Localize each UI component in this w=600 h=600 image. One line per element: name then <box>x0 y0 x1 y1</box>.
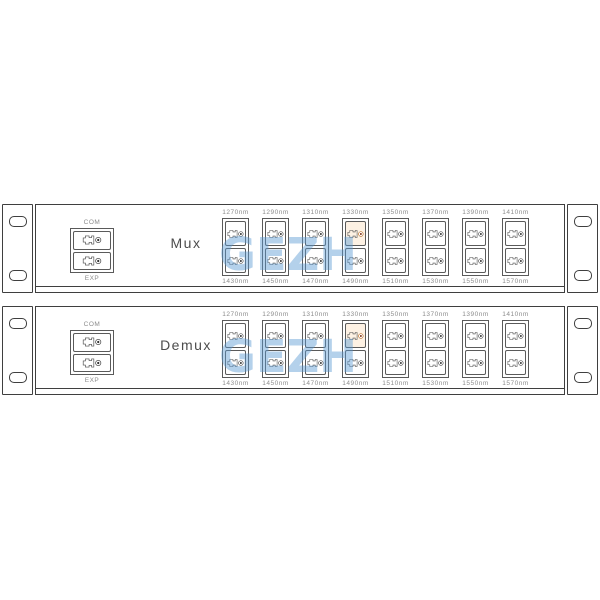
wavelength-port-column: 1290nm 1450nm <box>262 208 289 286</box>
lc-connector-icon <box>226 330 245 342</box>
wavelength-label-bottom: 1470nm <box>302 277 329 286</box>
lc-connector-icon <box>226 357 245 369</box>
wavelength-label-top: 1350nm <box>382 208 409 217</box>
lc-connector-icon <box>226 255 245 267</box>
lc-port-bottom <box>465 248 486 273</box>
lc-port-bottom <box>305 248 326 273</box>
wavelength-label-top: 1290nm <box>262 208 289 217</box>
lc-port-bottom <box>345 248 366 273</box>
lc-connector-icon <box>306 330 325 342</box>
lc-connector-icon <box>466 255 485 267</box>
lc-connector-icon <box>466 330 485 342</box>
duplex-portbox <box>382 320 409 378</box>
wavelength-port-column: 1270nm 1430nm <box>222 310 249 388</box>
wavelength-label-bottom: 1550nm <box>462 379 489 388</box>
lc-connector-icon <box>266 357 285 369</box>
lc-connector-icon <box>346 228 365 240</box>
lc-port-bottom <box>425 248 446 273</box>
lc-port-top <box>505 221 526 246</box>
wavelength-label-bottom: 1550nm <box>462 277 489 286</box>
wavelength-label-top: 1310nm <box>302 310 329 319</box>
wavelength-label-bottom: 1490nm <box>342 277 369 286</box>
lc-connector-icon <box>266 255 285 267</box>
lc-connector-icon <box>386 357 405 369</box>
lc-port-bottom <box>345 350 366 375</box>
ear-slot-icon <box>9 216 27 227</box>
duplex-portbox <box>462 320 489 378</box>
lc-port-bottom <box>505 350 526 375</box>
panel-face: COM EXP Demux 1270nm <box>36 307 564 388</box>
ear-slot-icon <box>574 216 592 227</box>
wavelength-label-top: 1270nm <box>222 208 249 217</box>
mounting-ear-right <box>567 204 598 293</box>
lc-connector-icon <box>266 330 285 342</box>
lc-port-top <box>345 221 366 246</box>
wavelength-port-column: 1390nm 1550nm <box>462 208 489 286</box>
panel-body: COM EXP Mux 1270nm <box>35 204 565 293</box>
rack-stack: COM EXP Mux 1270nm <box>2 204 598 395</box>
lc-port-top <box>265 323 286 348</box>
wavelength-label-bottom: 1430nm <box>222 379 249 388</box>
com-label: COM <box>84 218 101 227</box>
lc-port-bottom <box>425 350 446 375</box>
lc-port-top <box>305 323 326 348</box>
lc-connector-icon <box>81 357 103 369</box>
wavelength-ports-row: 1270nm 1430nm 1290nm 1450nm 1310nm <box>222 208 529 286</box>
wavelength-label-bottom: 1570nm <box>502 277 529 286</box>
wavelength-label-bottom: 1510nm <box>382 379 409 388</box>
lc-port-bottom <box>465 350 486 375</box>
duplex-portbox <box>262 320 289 378</box>
ear-slot-icon <box>574 270 592 281</box>
lc-connector-icon <box>506 228 525 240</box>
wavelength-port-column: 1410nm 1570nm <box>502 208 529 286</box>
com-exp-portbox <box>70 228 114 273</box>
com-exp-block: COM EXP <box>68 218 116 283</box>
duplex-portbox <box>502 320 529 378</box>
wavelength-label-top: 1310nm <box>302 208 329 217</box>
demux-panel: COM EXP Demux 1270nm <box>2 306 598 395</box>
wavelength-port-column: 1310nm 1470nm <box>302 310 329 388</box>
wavelength-label-top: 1270nm <box>222 310 249 319</box>
lc-port-top <box>345 323 366 348</box>
wavelength-port-column: 1290nm 1450nm <box>262 310 289 388</box>
lc-port-top <box>505 323 526 348</box>
duplex-portbox <box>422 320 449 378</box>
wavelength-label-top: 1370nm <box>422 208 449 217</box>
wavelength-label-bottom: 1430nm <box>222 277 249 286</box>
lc-connector-icon <box>346 357 365 369</box>
lc-port-bottom <box>225 248 246 273</box>
wavelength-label-bottom: 1570nm <box>502 379 529 388</box>
diagram-canvas: COM EXP Mux 1270nm <box>0 0 600 600</box>
lc-port-top <box>425 323 446 348</box>
wavelength-label-bottom: 1530nm <box>422 277 449 286</box>
wavelength-label-bottom: 1450nm <box>262 277 289 286</box>
lc-connector-icon <box>386 255 405 267</box>
wavelength-port-column: 1350nm 1510nm <box>382 208 409 286</box>
wavelength-ports-row: 1270nm 1430nm 1290nm 1450nm 1310nm <box>222 310 529 388</box>
wavelength-port-column: 1410nm 1570nm <box>502 310 529 388</box>
mounting-ear-right <box>567 306 598 395</box>
lc-connector-icon <box>426 330 445 342</box>
ear-slot-icon <box>574 372 592 383</box>
duplex-portbox <box>462 218 489 276</box>
wavelength-label-bottom: 1510nm <box>382 277 409 286</box>
lc-connector-icon <box>386 228 405 240</box>
lc-connector-icon <box>81 255 103 267</box>
lc-port-bottom <box>505 248 526 273</box>
lc-connector-icon <box>426 357 445 369</box>
wavelength-label-top: 1290nm <box>262 310 289 319</box>
wavelength-label-top: 1390nm <box>462 310 489 319</box>
wavelength-port-column: 1350nm 1510nm <box>382 310 409 388</box>
lc-port-bottom <box>305 350 326 375</box>
wavelength-port-column: 1370nm 1530nm <box>422 310 449 388</box>
duplex-portbox <box>502 218 529 276</box>
duplex-portbox <box>262 218 289 276</box>
duplex-portbox <box>422 218 449 276</box>
duplex-portbox <box>342 218 369 276</box>
mounting-ear-left <box>2 306 33 395</box>
lc-connector-icon <box>386 330 405 342</box>
lc-connector-icon <box>81 336 103 348</box>
mounting-ear-left <box>2 204 33 293</box>
wavelength-label-top: 1390nm <box>462 208 489 217</box>
lc-connector-icon <box>506 330 525 342</box>
lc-connector-icon <box>346 255 365 267</box>
lc-port-top <box>225 221 246 246</box>
lc-port-top <box>385 323 406 348</box>
lc-port-top <box>305 221 326 246</box>
lc-connector-icon <box>506 255 525 267</box>
com-port <box>73 333 111 352</box>
lc-connector-icon <box>306 228 325 240</box>
wavelength-label-bottom: 1530nm <box>422 379 449 388</box>
lc-port-bottom <box>225 350 246 375</box>
wavelength-port-column: 1370nm 1530nm <box>422 208 449 286</box>
panel-face: COM EXP Mux 1270nm <box>36 205 564 286</box>
lc-connector-icon <box>426 255 445 267</box>
wavelength-label-top: 1410nm <box>502 208 529 217</box>
wavelength-label-bottom: 1470nm <box>302 379 329 388</box>
duplex-portbox <box>222 320 249 378</box>
lc-connector-icon <box>466 357 485 369</box>
lc-port-bottom <box>385 350 406 375</box>
exp-port <box>73 354 111 373</box>
duplex-portbox <box>302 320 329 378</box>
lc-connector-icon <box>426 228 445 240</box>
lc-connector-icon <box>226 228 245 240</box>
lc-connector-icon <box>466 228 485 240</box>
wavelength-label-top: 1330nm <box>342 310 369 319</box>
lc-connector-icon <box>306 357 325 369</box>
exp-port <box>73 252 111 271</box>
mux-panel: COM EXP Mux 1270nm <box>2 204 598 293</box>
wavelength-port-column: 1330nm 1490nm <box>342 208 369 286</box>
wavelength-port-column: 1310nm 1470nm <box>302 208 329 286</box>
lc-port-bottom <box>385 248 406 273</box>
ear-slot-icon <box>9 318 27 329</box>
duplex-portbox <box>342 320 369 378</box>
lc-port-top <box>465 323 486 348</box>
lc-port-top <box>265 221 286 246</box>
exp-label: EXP <box>85 274 100 283</box>
ear-slot-icon <box>9 270 27 281</box>
ear-slot-icon <box>574 318 592 329</box>
duplex-portbox <box>222 218 249 276</box>
wavelength-port-column: 1390nm 1550nm <box>462 310 489 388</box>
lc-connector-icon <box>266 228 285 240</box>
duplex-portbox <box>382 218 409 276</box>
com-label: COM <box>84 320 101 329</box>
wavelength-label-top: 1370nm <box>422 310 449 319</box>
exp-label: EXP <box>85 376 100 385</box>
lc-port-top <box>465 221 486 246</box>
wavelength-label-bottom: 1450nm <box>262 379 289 388</box>
wavelength-label-top: 1410nm <box>502 310 529 319</box>
lc-port-top <box>225 323 246 348</box>
ear-slot-icon <box>9 372 27 383</box>
duplex-portbox <box>302 218 329 276</box>
com-port <box>73 231 111 250</box>
panel-bottom-lip <box>36 286 564 292</box>
lc-connector-icon <box>346 330 365 342</box>
lc-connector-icon <box>81 234 103 246</box>
wavelength-port-column: 1270nm 1430nm <box>222 208 249 286</box>
com-exp-portbox <box>70 330 114 375</box>
lc-connector-icon <box>506 357 525 369</box>
wavelength-label-bottom: 1490nm <box>342 379 369 388</box>
wavelength-port-column: 1330nm 1490nm <box>342 310 369 388</box>
lc-connector-icon <box>306 255 325 267</box>
lc-port-top <box>425 221 446 246</box>
com-exp-block: COM EXP <box>68 320 116 385</box>
lc-port-top <box>385 221 406 246</box>
wavelength-label-top: 1330nm <box>342 208 369 217</box>
panel-bottom-lip <box>36 388 564 394</box>
panel-body: COM EXP Demux 1270nm <box>35 306 565 395</box>
lc-port-bottom <box>265 350 286 375</box>
lc-port-bottom <box>265 248 286 273</box>
wavelength-label-top: 1350nm <box>382 310 409 319</box>
